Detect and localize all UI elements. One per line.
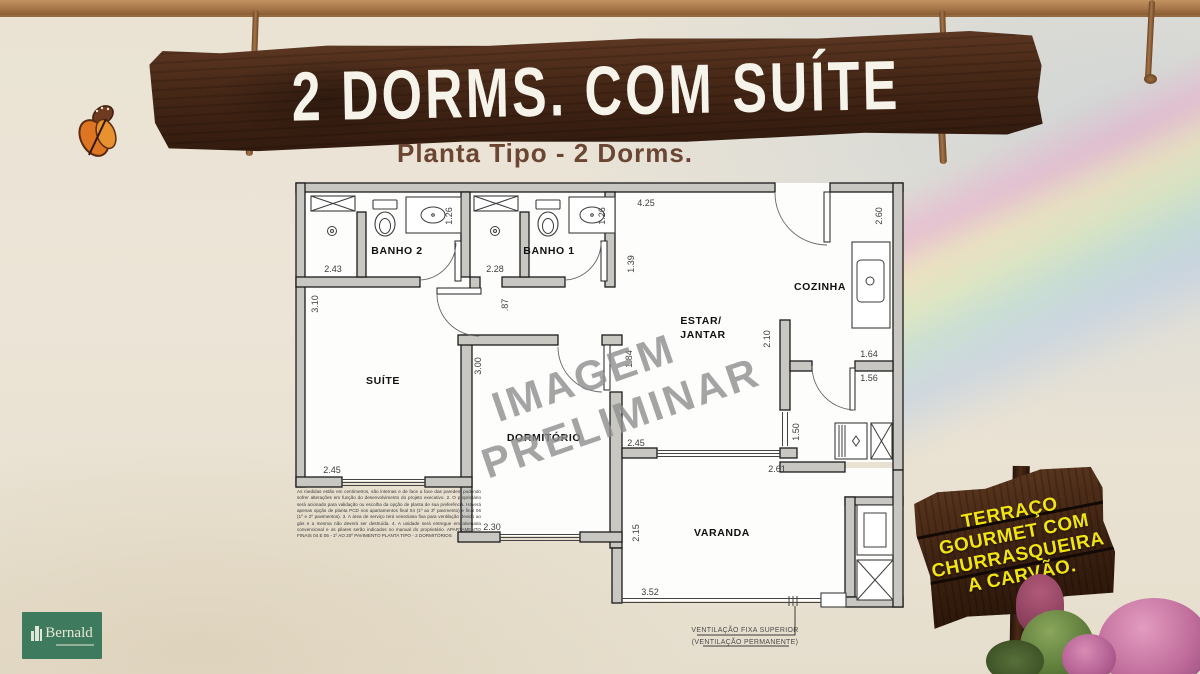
dim-estar-bottom: 2.45 [627, 438, 645, 448]
butterfly-icon [72, 96, 124, 168]
room-label-estar: ESTAR/ [680, 315, 721, 327]
dim-dorm-left: 3.00 [473, 357, 483, 375]
poster: 2 DORMS. COM SUÍTE Planta Tipo - 2 Dorms… [0, 0, 1200, 674]
dim-serv-door: 1.50 [791, 423, 801, 441]
dim-estar-top: 4.25 [637, 198, 655, 208]
dim-banho1-depth: 1.26 [597, 207, 607, 225]
plant-dark-green [986, 640, 1044, 674]
logo-name: Bernald [45, 625, 92, 642]
dim-banho2-depth: 1.26 [444, 207, 454, 225]
room-label-banho1: BANHO 1 [523, 245, 574, 257]
dim-cozinha-pass: 2.10 [762, 330, 772, 348]
dim-suite-left: 3.10 [310, 295, 320, 313]
dim-varanda-left: 2.15 [631, 524, 641, 542]
wooden-top-bar [0, 0, 1200, 17]
dim-banho2-width: 2.43 [324, 264, 342, 274]
dim-banho1-width: 2.28 [486, 264, 504, 274]
building-icon [31, 626, 42, 641]
toilet-icon [536, 200, 560, 209]
dim-estar-left: 1.39 [626, 255, 636, 273]
dim-suite-width: 2.45 [323, 465, 341, 475]
page-subtitle: Planta Tipo - 2 Dorms. [300, 138, 790, 169]
floor-plan: BANHO 2 BANHO 1 SUÍTE DORMITÓRIO ESTAR/ … [292, 180, 914, 652]
room-label-banho2: BANHO 2 [371, 245, 422, 257]
dim-serv-top: 1.64 [860, 349, 878, 359]
dim-cozinha-width: 2.60 [874, 207, 884, 225]
washer-icon [835, 423, 867, 459]
flowers-pink-small [1062, 634, 1116, 674]
room-label-varanda: VARANDA [694, 527, 750, 539]
logo-tagline [56, 644, 94, 646]
toilet-icon [373, 200, 397, 209]
room-label-cozinha: COZINHA [794, 281, 846, 293]
dim-serv-mid: 1.56 [860, 373, 878, 383]
bernald-logo: Bernald [22, 612, 102, 659]
sink-counter [569, 197, 615, 233]
dim-hall: .87 [500, 299, 510, 312]
dim-dorm-width: 2.30 [483, 522, 501, 532]
vent-note-line1: VENTILAÇÃO FIXA SUPERIOR [691, 625, 798, 634]
dim-varanda-bottom: 3.52 [641, 587, 659, 597]
ventilation-note: VENTILAÇÃO FIXA SUPERIOR (VENTILAÇÃO PER… [691, 606, 798, 646]
disclaimer-text: As medidas estão em centímetros, são int… [297, 489, 481, 540]
dim-varanda-top: 2.61 [768, 464, 786, 474]
rope-knot-far-right [1144, 74, 1157, 84]
room-label-jantar: JANTAR [680, 329, 725, 341]
room-label-suite: SUÍTE [366, 374, 400, 387]
vent-note-line2: (VENTILAÇÃO PERMANENTE) [692, 637, 798, 646]
